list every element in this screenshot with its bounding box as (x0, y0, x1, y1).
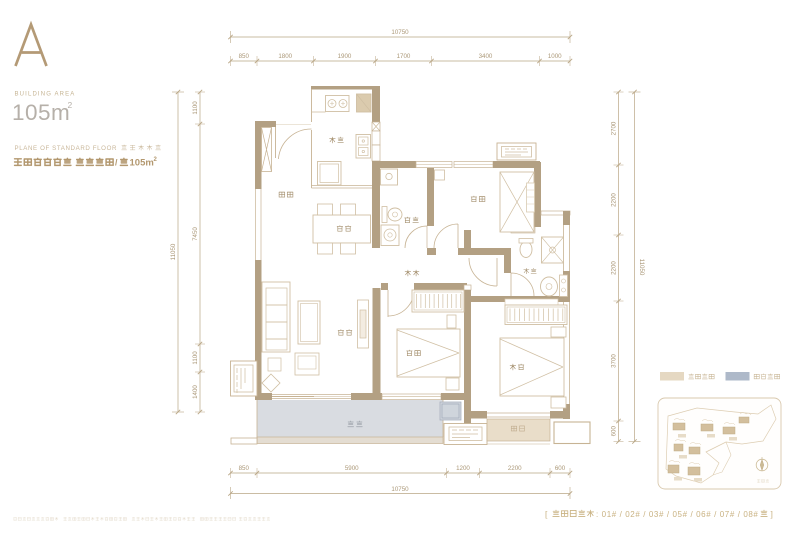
svg-text:1900: 1900 (338, 53, 352, 60)
svg-text:105m: 105m (12, 100, 70, 125)
svg-text:: 01# / 02# / 03# / 05# / 06#: : 01# / 02# / 03# / 05# / 06# / 07# / 08… (596, 510, 759, 519)
svg-text:850: 850 (239, 465, 250, 472)
svg-text:]: ] (771, 509, 773, 519)
svg-text:1000: 1000 (548, 53, 562, 60)
svg-text:11050: 11050 (638, 259, 645, 276)
svg-text:7450: 7450 (192, 227, 199, 241)
svg-text:3700: 3700 (611, 354, 618, 368)
svg-text:11050: 11050 (170, 243, 177, 260)
svg-text:1200: 1200 (456, 465, 470, 472)
svg-text:1400: 1400 (192, 385, 199, 399)
svg-text:2200: 2200 (611, 193, 618, 207)
svg-text:2200: 2200 (508, 465, 522, 472)
svg-text:1800: 1800 (278, 53, 292, 60)
svg-text:2700: 2700 (611, 121, 618, 135)
svg-text:600: 600 (555, 465, 566, 472)
svg-text:600: 600 (611, 426, 618, 437)
svg-text:1100: 1100 (192, 351, 199, 365)
svg-text:10750: 10750 (391, 29, 409, 36)
svg-text:2200: 2200 (611, 261, 618, 275)
svg-text:850: 850 (239, 53, 250, 60)
svg-text:10750: 10750 (391, 486, 409, 493)
svg-text:5900: 5900 (345, 465, 359, 472)
svg-text:3400: 3400 (479, 53, 493, 60)
svg-text:1100: 1100 (192, 101, 199, 115)
svg-text:1700: 1700 (397, 53, 411, 60)
svg-text:2: 2 (68, 100, 73, 110)
svg-text:PLANE OF STANDARD FLOOR: PLANE OF STANDARD FLOOR (15, 145, 118, 152)
svg-text:105m: 105m (130, 158, 154, 169)
svg-text:BUILDING AREA: BUILDING AREA (15, 92, 76, 98)
